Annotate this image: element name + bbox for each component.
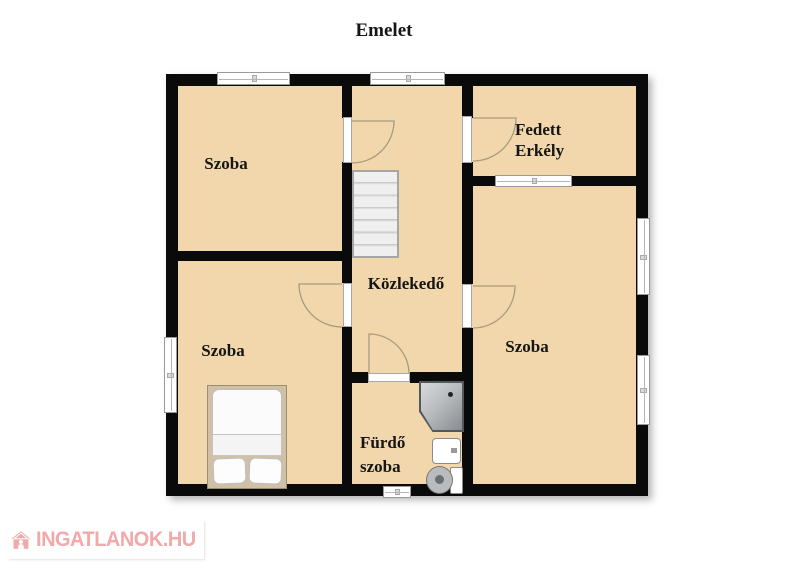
room-label-bathroom-line1: Fürdő [360, 431, 405, 455]
bed-sheet-fold [212, 434, 282, 456]
door-slab-balcony [462, 116, 472, 163]
interior-wall-left-of-hallway-mid [342, 162, 352, 283]
pillow [249, 457, 283, 484]
watermark-brand-text: INGATLANOK.HU [36, 528, 196, 552]
staircase [352, 170, 399, 258]
faucet-icon [451, 448, 457, 453]
page-title: Emelet [300, 21, 468, 42]
interior-wall-right-of-hallway-top [462, 86, 473, 118]
interior-wall-left-of-hallway-bottom [342, 327, 352, 484]
toilet [426, 466, 453, 494]
balcony-wall-left-segment [473, 176, 495, 186]
balcony-wall-right-segment [572, 176, 636, 186]
interior-wall-right-of-hallway-mid [462, 162, 473, 284]
window-bathroom [383, 486, 411, 498]
pillow [213, 457, 247, 484]
interior-wall-between-left-rooms [178, 251, 342, 261]
watermark-logo: INGATLANOK.HU [8, 521, 204, 559]
room-label-bathroom-line2: szoba [360, 455, 405, 479]
house-person-icon [11, 524, 31, 556]
outer-wall-left [166, 74, 178, 496]
window-balcony-partition [495, 175, 572, 187]
double-bed [207, 385, 287, 489]
room-label-bathroom: Fürdő szoba [360, 431, 405, 479]
toilet-bowl-center [435, 475, 444, 484]
room-label-right-bedroom: Szoba [467, 338, 587, 357]
interior-wall-left-of-hallway-top [342, 86, 352, 118]
shower-drain-icon [448, 392, 453, 397]
sink [432, 438, 461, 464]
room-label-covered-balcony-line1: Fedett [515, 119, 564, 140]
room-label-top-left-bedroom: Szoba [166, 155, 286, 174]
room-label-covered-balcony: Fedett Erkély [515, 119, 564, 161]
room-label-covered-balcony-line2: Erkély [515, 140, 564, 161]
window-right-room-upper [637, 218, 650, 295]
shower-tray [421, 383, 462, 430]
door-slab-hallway-left [343, 117, 352, 163]
window-hallway-top [370, 72, 445, 85]
window-right-room-lower [637, 355, 650, 425]
bathroom-wall-left-segment [352, 372, 368, 383]
floor-plan-image: Emelet Szoba Szoba Szoba Közlekedő Fedet… [0, 0, 800, 562]
window-top-left-room [217, 72, 290, 85]
door-slab-bathroom [368, 373, 410, 382]
room-label-bottom-left-bedroom: Szoba [163, 342, 283, 361]
room-label-hallway: Közlekedő [341, 275, 471, 294]
